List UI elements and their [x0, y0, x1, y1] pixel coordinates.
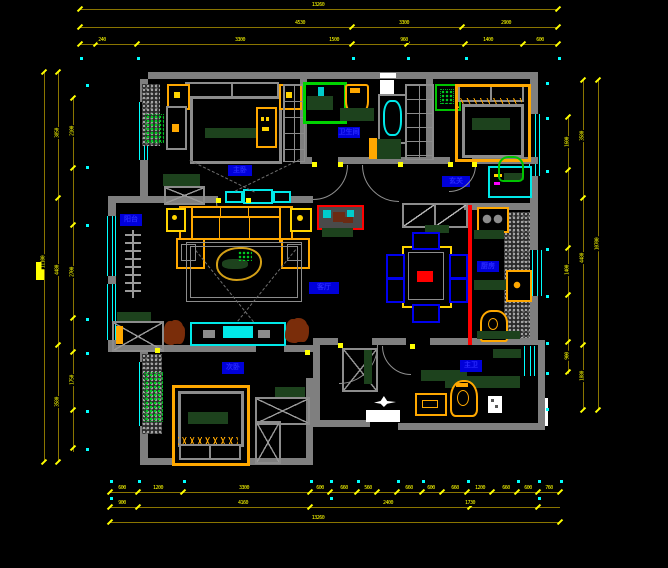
extension-dot	[86, 224, 89, 227]
dim-line	[80, 44, 558, 45]
shelf	[480, 331, 520, 339]
soap-box	[488, 396, 502, 413]
pillow	[205, 128, 261, 138]
extension-dot	[546, 372, 549, 375]
extension-dot	[110, 480, 113, 483]
dim-tick	[595, 407, 601, 413]
extension-dot	[546, 295, 549, 298]
dim-label: 600	[426, 486, 436, 491]
hinge-dot	[305, 350, 310, 355]
plant-stand	[125, 230, 141, 298]
plant-pot	[165, 322, 183, 344]
dim-label: 13260	[311, 516, 326, 521]
dim-label: 3850	[56, 127, 61, 139]
dim-tick	[557, 519, 563, 525]
hinge-dot	[448, 162, 453, 167]
bidet-table	[415, 393, 447, 416]
step-line	[545, 398, 548, 426]
small-window	[380, 80, 394, 94]
dim-label: 4530	[294, 21, 306, 26]
wall-bath2-bottom	[398, 423, 545, 430]
dim-label: 2100	[71, 125, 76, 137]
hinge-dot	[216, 198, 221, 203]
dim-tick	[565, 369, 571, 375]
wall-corridor-left	[313, 345, 320, 423]
dresser	[166, 106, 187, 150]
counter	[474, 230, 504, 239]
dim-label: 11100	[42, 255, 47, 270]
north-arrow-icon	[374, 396, 396, 407]
shelf	[377, 139, 401, 159]
wall-bath2-right	[538, 340, 545, 430]
dim-label: 2900	[500, 21, 512, 26]
dim-tick	[557, 489, 563, 495]
dim-tick	[555, 24, 561, 30]
shower-bench	[307, 96, 333, 110]
extension-dot	[546, 248, 549, 251]
extension-dot	[546, 117, 549, 120]
extension-dot	[558, 57, 561, 60]
dim-tick	[41, 459, 47, 465]
dim-label: 10700	[596, 237, 601, 252]
wall-bed2-top-l	[148, 345, 256, 352]
dim-tick	[555, 6, 561, 12]
window-kitchen	[532, 250, 542, 296]
side-table	[166, 208, 186, 232]
bed-frame	[462, 104, 524, 158]
room-label-master: 主卧	[228, 165, 252, 176]
extension-dot	[86, 84, 89, 87]
extension-dot	[183, 480, 186, 483]
room-label-bathroom: 卫生间	[338, 127, 360, 138]
plant	[144, 372, 163, 422]
dining-chair	[449, 254, 468, 279]
hinge-dot	[472, 162, 477, 167]
extension-dot	[465, 57, 468, 60]
dresser	[256, 107, 277, 148]
extension-dot	[138, 480, 141, 483]
room-label-balcony: 阳台	[120, 214, 142, 226]
bed2-drawer	[209, 444, 241, 460]
dim-label: 760	[544, 486, 554, 491]
window	[107, 216, 116, 276]
dim-label: 660	[404, 486, 414, 491]
pillow	[472, 118, 510, 130]
hinge-dot	[312, 162, 317, 167]
hinge-dot	[155, 348, 160, 353]
dim-label: 1600	[566, 136, 571, 148]
bay-accent	[116, 326, 123, 344]
dim-label: 3300	[398, 21, 410, 26]
dining-chair	[386, 254, 405, 279]
room-label-kitchen: 厨房	[477, 261, 499, 272]
sofa-seat	[188, 216, 284, 240]
extension-dot	[422, 480, 425, 483]
dim-label: 1750	[71, 374, 76, 386]
bed2-drawer	[179, 444, 211, 460]
extension-dot	[546, 82, 549, 85]
room-label-living: 客厅	[309, 282, 339, 294]
wall-balcony-left	[108, 203, 116, 216]
extension-dot	[407, 57, 410, 60]
extension-dot	[86, 352, 89, 355]
dining-chair	[412, 304, 440, 323]
room-label-bathroom2: 主卫	[460, 360, 482, 372]
extension-dot	[357, 480, 360, 483]
washbasin	[383, 100, 402, 136]
dim-line	[110, 507, 560, 508]
wall-living-bottom-l	[313, 338, 338, 345]
dim-label: 600	[315, 486, 325, 491]
kitchen-sink	[506, 270, 532, 302]
dim-tick	[555, 41, 561, 47]
plant-pot	[287, 320, 307, 342]
wall-kitchen-right	[530, 203, 538, 250]
dim-label: 1200	[152, 486, 164, 491]
dim-label: 3300	[234, 38, 246, 43]
washer-shaft	[342, 348, 378, 392]
dim-line	[80, 27, 558, 28]
hinge-dot	[398, 162, 403, 167]
dim-label: 660	[339, 486, 349, 491]
shelf	[275, 387, 305, 397]
dim-label: 4480	[56, 264, 61, 276]
dim-label: 4160	[237, 501, 249, 506]
wall-living-bottom-m	[372, 338, 406, 345]
extension-dot	[546, 342, 549, 345]
dim-label: 2400	[382, 501, 394, 506]
desk-chair	[498, 156, 524, 182]
logo-bar	[366, 410, 400, 422]
extension-dot	[538, 497, 541, 500]
toilet2	[450, 380, 478, 417]
shelf	[493, 349, 521, 358]
extension-dot	[310, 480, 313, 483]
extension-dot	[330, 480, 333, 483]
dim-label: 900	[117, 501, 127, 506]
extension-dot	[86, 410, 89, 413]
wall-corridor-bottom	[313, 420, 370, 427]
dim-label: 660	[450, 486, 460, 491]
dining-chair	[449, 278, 468, 303]
extension-dot	[352, 57, 355, 60]
dim-label: 13260	[311, 3, 326, 8]
dim-line	[110, 522, 560, 523]
extension-dot	[86, 166, 89, 169]
dim-label: 1400	[482, 38, 494, 43]
hinge-dot	[410, 344, 415, 349]
bench	[164, 186, 205, 205]
side-table	[290, 208, 312, 232]
window-bath2	[524, 346, 535, 376]
wall-top	[148, 72, 538, 79]
wall-right-upper	[530, 72, 538, 114]
dim-tick	[55, 459, 61, 465]
extension-dot	[517, 480, 520, 483]
decor-console	[317, 205, 364, 230]
hinge-dot	[246, 198, 251, 203]
speaker	[258, 330, 270, 338]
dim-label: 1400	[566, 264, 571, 276]
extension-dot	[86, 448, 89, 451]
extension-dot	[80, 57, 83, 60]
centerpiece	[417, 271, 433, 282]
dim-label: 900	[566, 351, 571, 361]
extension-dot	[560, 480, 563, 483]
console-table	[322, 228, 353, 237]
sliding-door-track	[468, 205, 472, 345]
extension-dot	[397, 480, 400, 483]
low-cabinet	[163, 174, 200, 186]
extension-dot	[546, 170, 549, 173]
wall-balcony-mid	[108, 276, 116, 284]
dim-label: 600	[117, 486, 127, 491]
dim-label: 3300	[238, 486, 250, 491]
hinge-dot	[338, 162, 343, 167]
wardrobe-master	[283, 84, 305, 162]
dim-label: 2700	[71, 266, 76, 278]
dim-label: 960	[399, 38, 409, 43]
dining-chair	[412, 232, 440, 250]
dim-label: 4480	[581, 252, 586, 264]
dim-label: 600	[535, 38, 545, 43]
dim-label: 600	[523, 486, 533, 491]
tall-cabinet	[405, 84, 434, 160]
extension-dot	[546, 408, 549, 411]
extension-dot	[330, 497, 333, 500]
dining-chair	[386, 278, 405, 303]
speaker	[203, 330, 215, 338]
dim-label: 3580	[56, 396, 61, 408]
dim-label: 3580	[581, 130, 586, 142]
hinge-dot	[338, 343, 343, 348]
dim-label: 660	[501, 486, 511, 491]
dim-tick	[580, 407, 586, 413]
dim-label: 1880	[581, 370, 586, 382]
extension-dot	[137, 57, 140, 60]
dim-label: 1200	[474, 486, 486, 491]
tv	[223, 326, 253, 338]
planter	[117, 312, 151, 321]
pillow	[188, 412, 228, 424]
shaft-strip	[364, 350, 372, 384]
cabinet-door	[369, 138, 377, 159]
dim-label: 560	[363, 486, 373, 491]
wardrobe2-side	[255, 421, 281, 464]
extension-dot	[86, 318, 89, 321]
console	[273, 191, 291, 203]
shelf	[340, 108, 374, 121]
floor-plan-canvas: 主卧 卫生间 玄关 客厅 阳台	[0, 0, 668, 568]
door-gap	[380, 73, 396, 78]
extension-dot	[538, 480, 541, 483]
dim-line	[80, 9, 558, 10]
dim-label: 1500	[328, 38, 340, 43]
shower-head-icon	[318, 87, 324, 96]
dim-label: 240	[97, 38, 107, 43]
room-label-bedroom2: 次卧	[222, 362, 244, 374]
extension-dot	[110, 497, 113, 500]
wall-stub	[108, 196, 148, 203]
extension-dot	[467, 480, 470, 483]
dim-label: 1730	[464, 501, 476, 506]
plant	[145, 114, 164, 143]
